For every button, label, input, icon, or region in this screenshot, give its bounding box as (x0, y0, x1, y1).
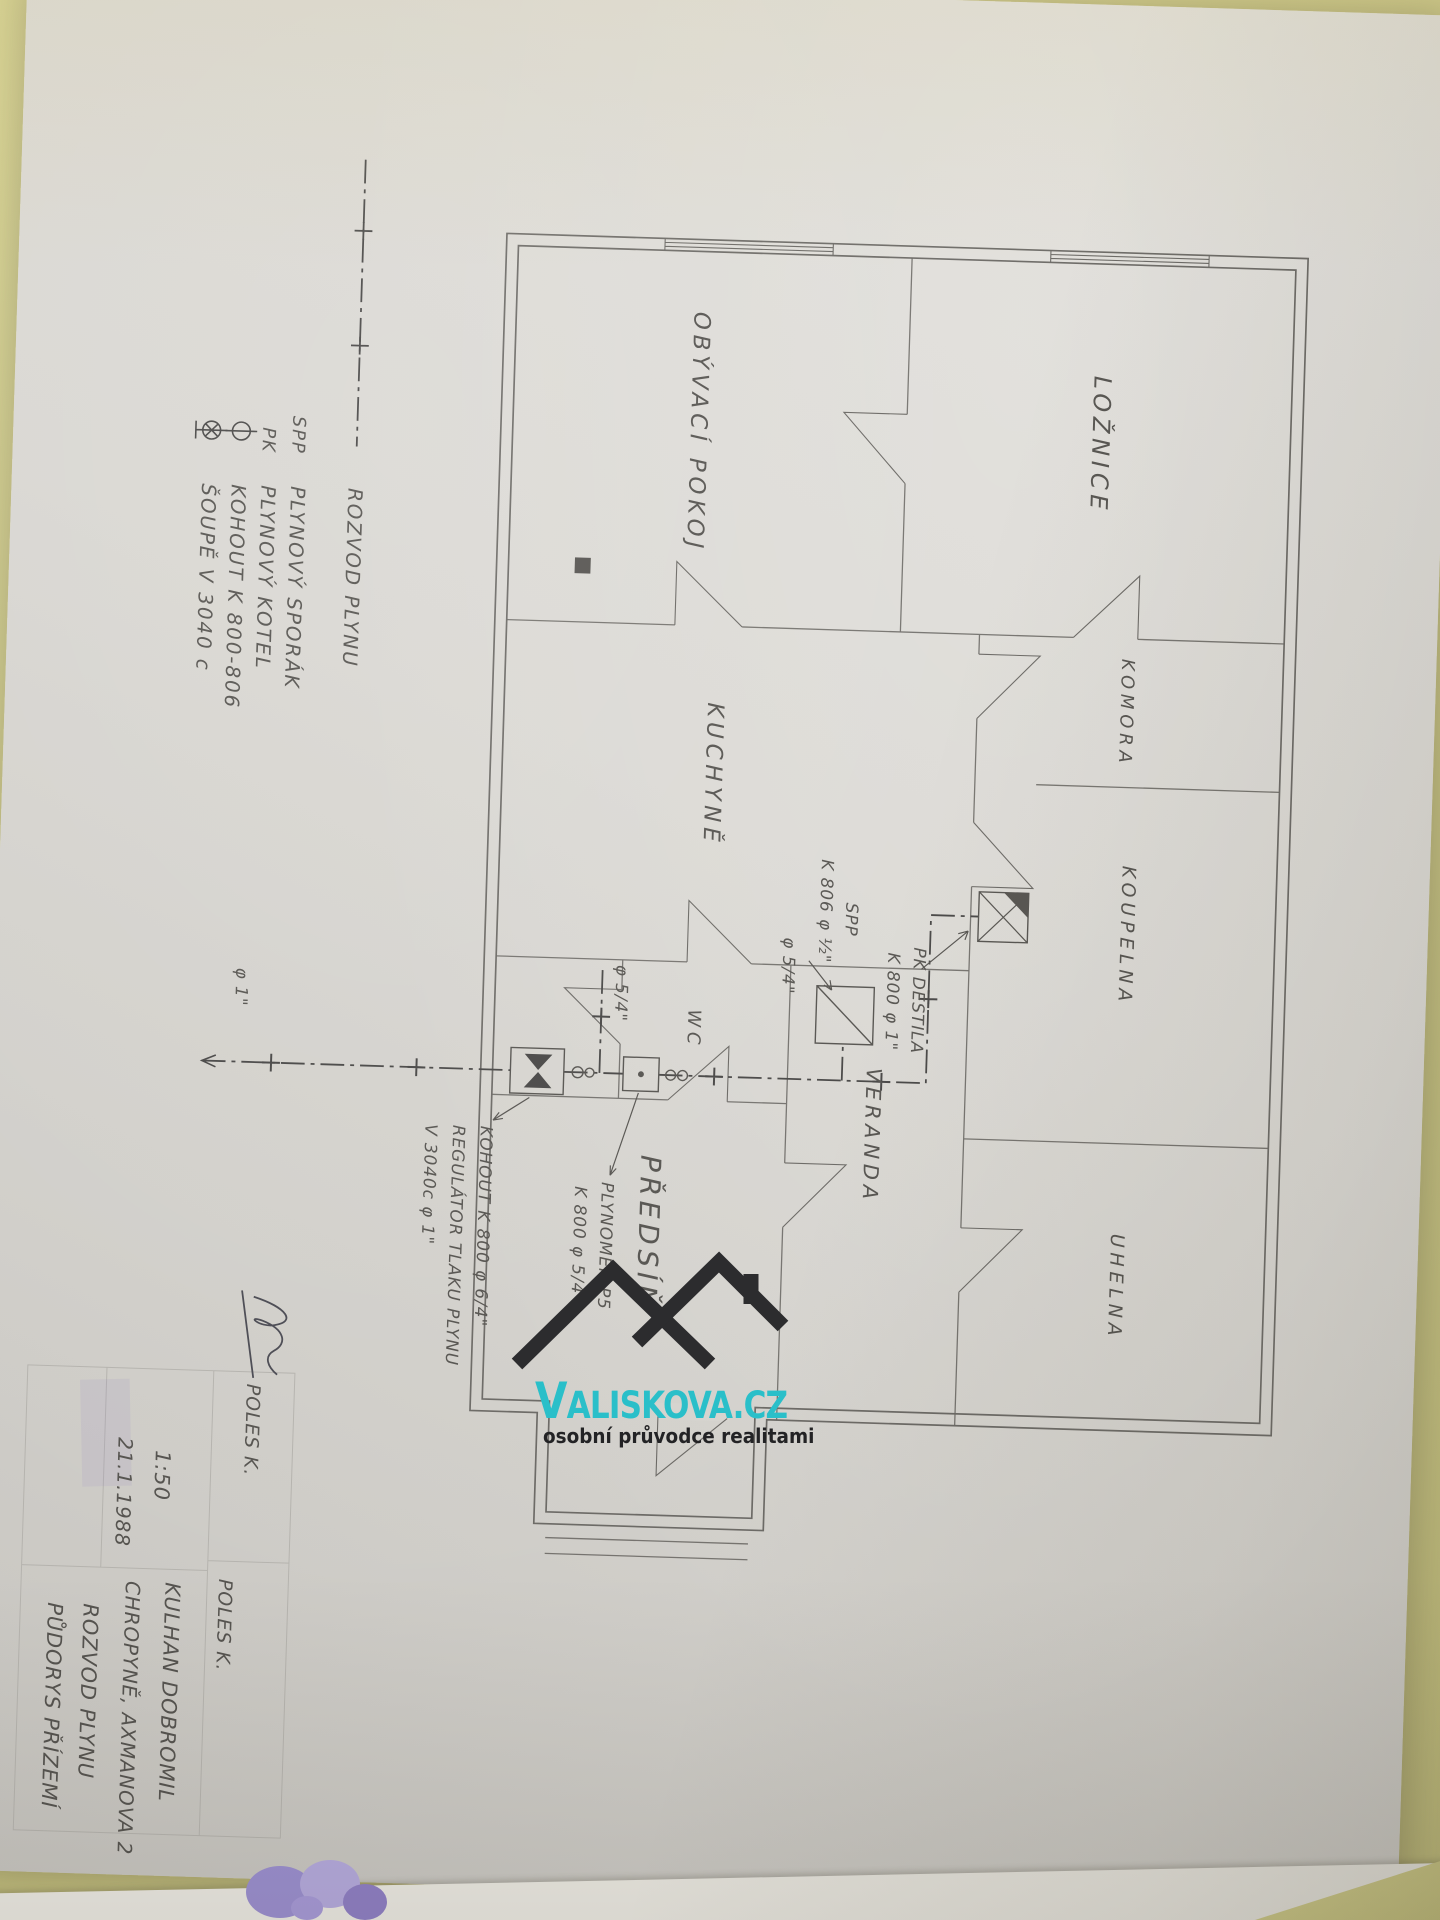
chimney-symbol (575, 557, 591, 573)
legend-label-kotel: PLYNOVÝ KOTEL (251, 485, 280, 670)
legend-label-sporak: PLYNOVÝ SPORÁK (280, 486, 309, 690)
stove-annotation-line1: SPP (841, 902, 862, 937)
floor-plan-drawing: LOŽNICE OBÝVACÍ POKOJ KOMORA KOUPELNA UH… (0, 0, 1440, 1915)
pipe-plus-marks (262, 969, 938, 1092)
checked-by: POLES K. (211, 1579, 235, 1672)
legend-gate-icon (196, 421, 228, 440)
gate-annotation: V 3040c φ 1" (418, 1124, 442, 1246)
drawing-date: 21.1.1988 (110, 1437, 136, 1547)
gas-boiler (978, 892, 1029, 943)
boiler-annotation-line2: K 800 φ 1" (881, 952, 904, 1051)
room-koupelna: KOUPELNA (1113, 865, 1138, 1006)
diameter-54-a: φ 5/4" (778, 937, 800, 995)
gas-stove (815, 986, 874, 1045)
legend-line-label: ROZVOD PLYNU (338, 488, 367, 668)
legend: ROZVOD PLYNU SPP PLYNOVÝ SPORÁK PK PLYNO… (187, 155, 377, 714)
watermark-brand-rest: ALISKOVA.CZ (567, 1384, 788, 1427)
room-obyvaci-pokoj: OBÝVACÍ POKOJ (681, 311, 717, 553)
legend-label-soupe: ŠOUPĚ V 3040 c (191, 483, 221, 672)
drafted-by: POLES K. (239, 1383, 263, 1476)
room-veranda: VERANDA (858, 1067, 886, 1204)
room-uhelna: UHELNA (1103, 1233, 1127, 1340)
photo-frame: LOŽNICE OBÝVACÍ POKOJ KOMORA KOUPELNA UH… (0, 0, 1440, 1920)
gas-meter (623, 1057, 688, 1093)
diameter-54-b: φ 5/4" (611, 964, 633, 1022)
legend-valve-icon (225, 422, 257, 441)
drawing-sheet: LOŽNICE OBÝVACÍ POKOJ KOMORA KOUPELNA UH… (0, 0, 1440, 1915)
valiskova-watermark: VALISKOVA.CZ osobní průvodce realitami (505, 1242, 805, 1472)
under-sheet-purple-graphic (235, 1842, 415, 1920)
room-wc: WC (682, 1009, 704, 1050)
regulator-assembly (510, 1047, 595, 1095)
title-block: POLES K. POLES K. 1:50 21.1.1988 KULHAN … (13, 1284, 298, 1860)
client-address: CHROPYNĚ, AXMANOVA 2 (112, 1581, 144, 1856)
legend-gas-line-symbol (357, 160, 366, 447)
boiler-annotation-line1: PK DESTILA (907, 947, 930, 1054)
regulator-annotation: REGULÁTOR TLAKU PLYNU (442, 1125, 471, 1367)
drawing-title: ROZVOD PLYNU (73, 1603, 103, 1779)
client-name: KULHAN DOBROMIL (154, 1582, 185, 1802)
room-loznice: LOŽNICE (1084, 376, 1116, 515)
stove-annotation-line2: K 806 φ ½" (815, 859, 838, 964)
room-kuchyne: KUCHYNĚ (698, 702, 731, 847)
legend-symbol-spp: SPP (287, 416, 309, 455)
room-labels: LOŽNICE OBÝVACÍ POKOJ KOMORA KOUPELNA UH… (629, 311, 1156, 1341)
watermark-tagline: osobní průvodce realitami (543, 1424, 814, 1448)
valve-annotation: KOHOUT K 800 φ 6/4" (471, 1126, 497, 1328)
watermark-brand-initial: V (535, 1372, 567, 1430)
watermark-brand: VALISKOVA.CZ (535, 1372, 787, 1430)
diameter-1: φ 1" (231, 967, 252, 1006)
legend-label-kohout: KOHOUT K 800-806 (220, 484, 250, 710)
signature-scribble (239, 1290, 287, 1378)
gas-pipe (199, 868, 1029, 1189)
drawing-scale: 1:50 (149, 1450, 175, 1501)
room-komora: KOMORA (1114, 659, 1138, 768)
legend-symbol-pk: PK (257, 427, 279, 454)
sheet-title: PŮDORYS PŘÍZEMÍ (37, 1602, 69, 1810)
